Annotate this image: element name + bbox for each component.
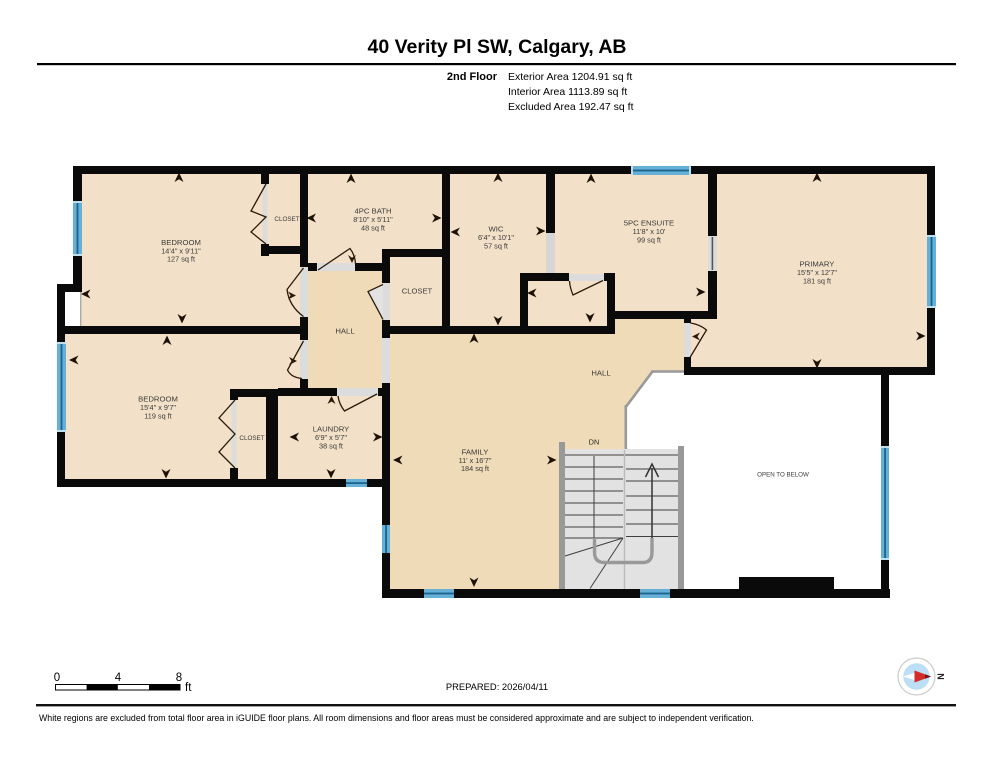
svg-text:HALL: HALL <box>591 369 611 378</box>
svg-text:HALL: HALL <box>335 327 355 336</box>
svg-text:2nd Floor: 2nd Floor <box>447 71 498 83</box>
svg-text:8: 8 <box>176 672 182 684</box>
svg-text:CLOSET: CLOSET <box>402 287 433 296</box>
svg-text:White regions are excluded fro: White regions are excluded from total fl… <box>39 713 754 723</box>
svg-text:OPEN TO BELOW: OPEN TO BELOW <box>757 472 809 479</box>
svg-text:40 Verity Pl SW, Calgary, AB: 40 Verity Pl SW, Calgary, AB <box>367 36 626 58</box>
svg-text:127 sq ft: 127 sq ft <box>167 255 195 264</box>
svg-text:Excluded Area 192.47 sq ft: Excluded Area 192.47 sq ft <box>508 101 634 113</box>
svg-text:184 sq ft: 184 sq ft <box>461 464 489 473</box>
svg-text:PREPARED: 2026/04/11: PREPARED: 2026/04/11 <box>446 681 548 692</box>
svg-text:Interior Area 1113.89 sq ft: Interior Area 1113.89 sq ft <box>508 86 627 98</box>
svg-text:CLOSET: CLOSET <box>274 216 299 223</box>
svg-text:CLOSET: CLOSET <box>239 435 264 442</box>
svg-text:57 sq ft: 57 sq ft <box>484 241 508 250</box>
svg-text:ft: ft <box>185 682 192 694</box>
svg-text:99 sq ft: 99 sq ft <box>637 235 661 244</box>
svg-text:38 sq ft: 38 sq ft <box>319 441 343 450</box>
svg-text:48 sq ft: 48 sq ft <box>361 223 385 232</box>
svg-text:DN: DN <box>589 438 599 447</box>
svg-text:181 sq ft: 181 sq ft <box>803 276 831 285</box>
svg-text:4: 4 <box>115 672 122 684</box>
svg-text:0: 0 <box>54 672 60 684</box>
svg-text:N: N <box>936 673 946 680</box>
svg-text:119 sq ft: 119 sq ft <box>144 411 171 420</box>
svg-text:Exterior Area 1204.91 sq ft: Exterior Area 1204.91 sq ft <box>508 71 632 83</box>
